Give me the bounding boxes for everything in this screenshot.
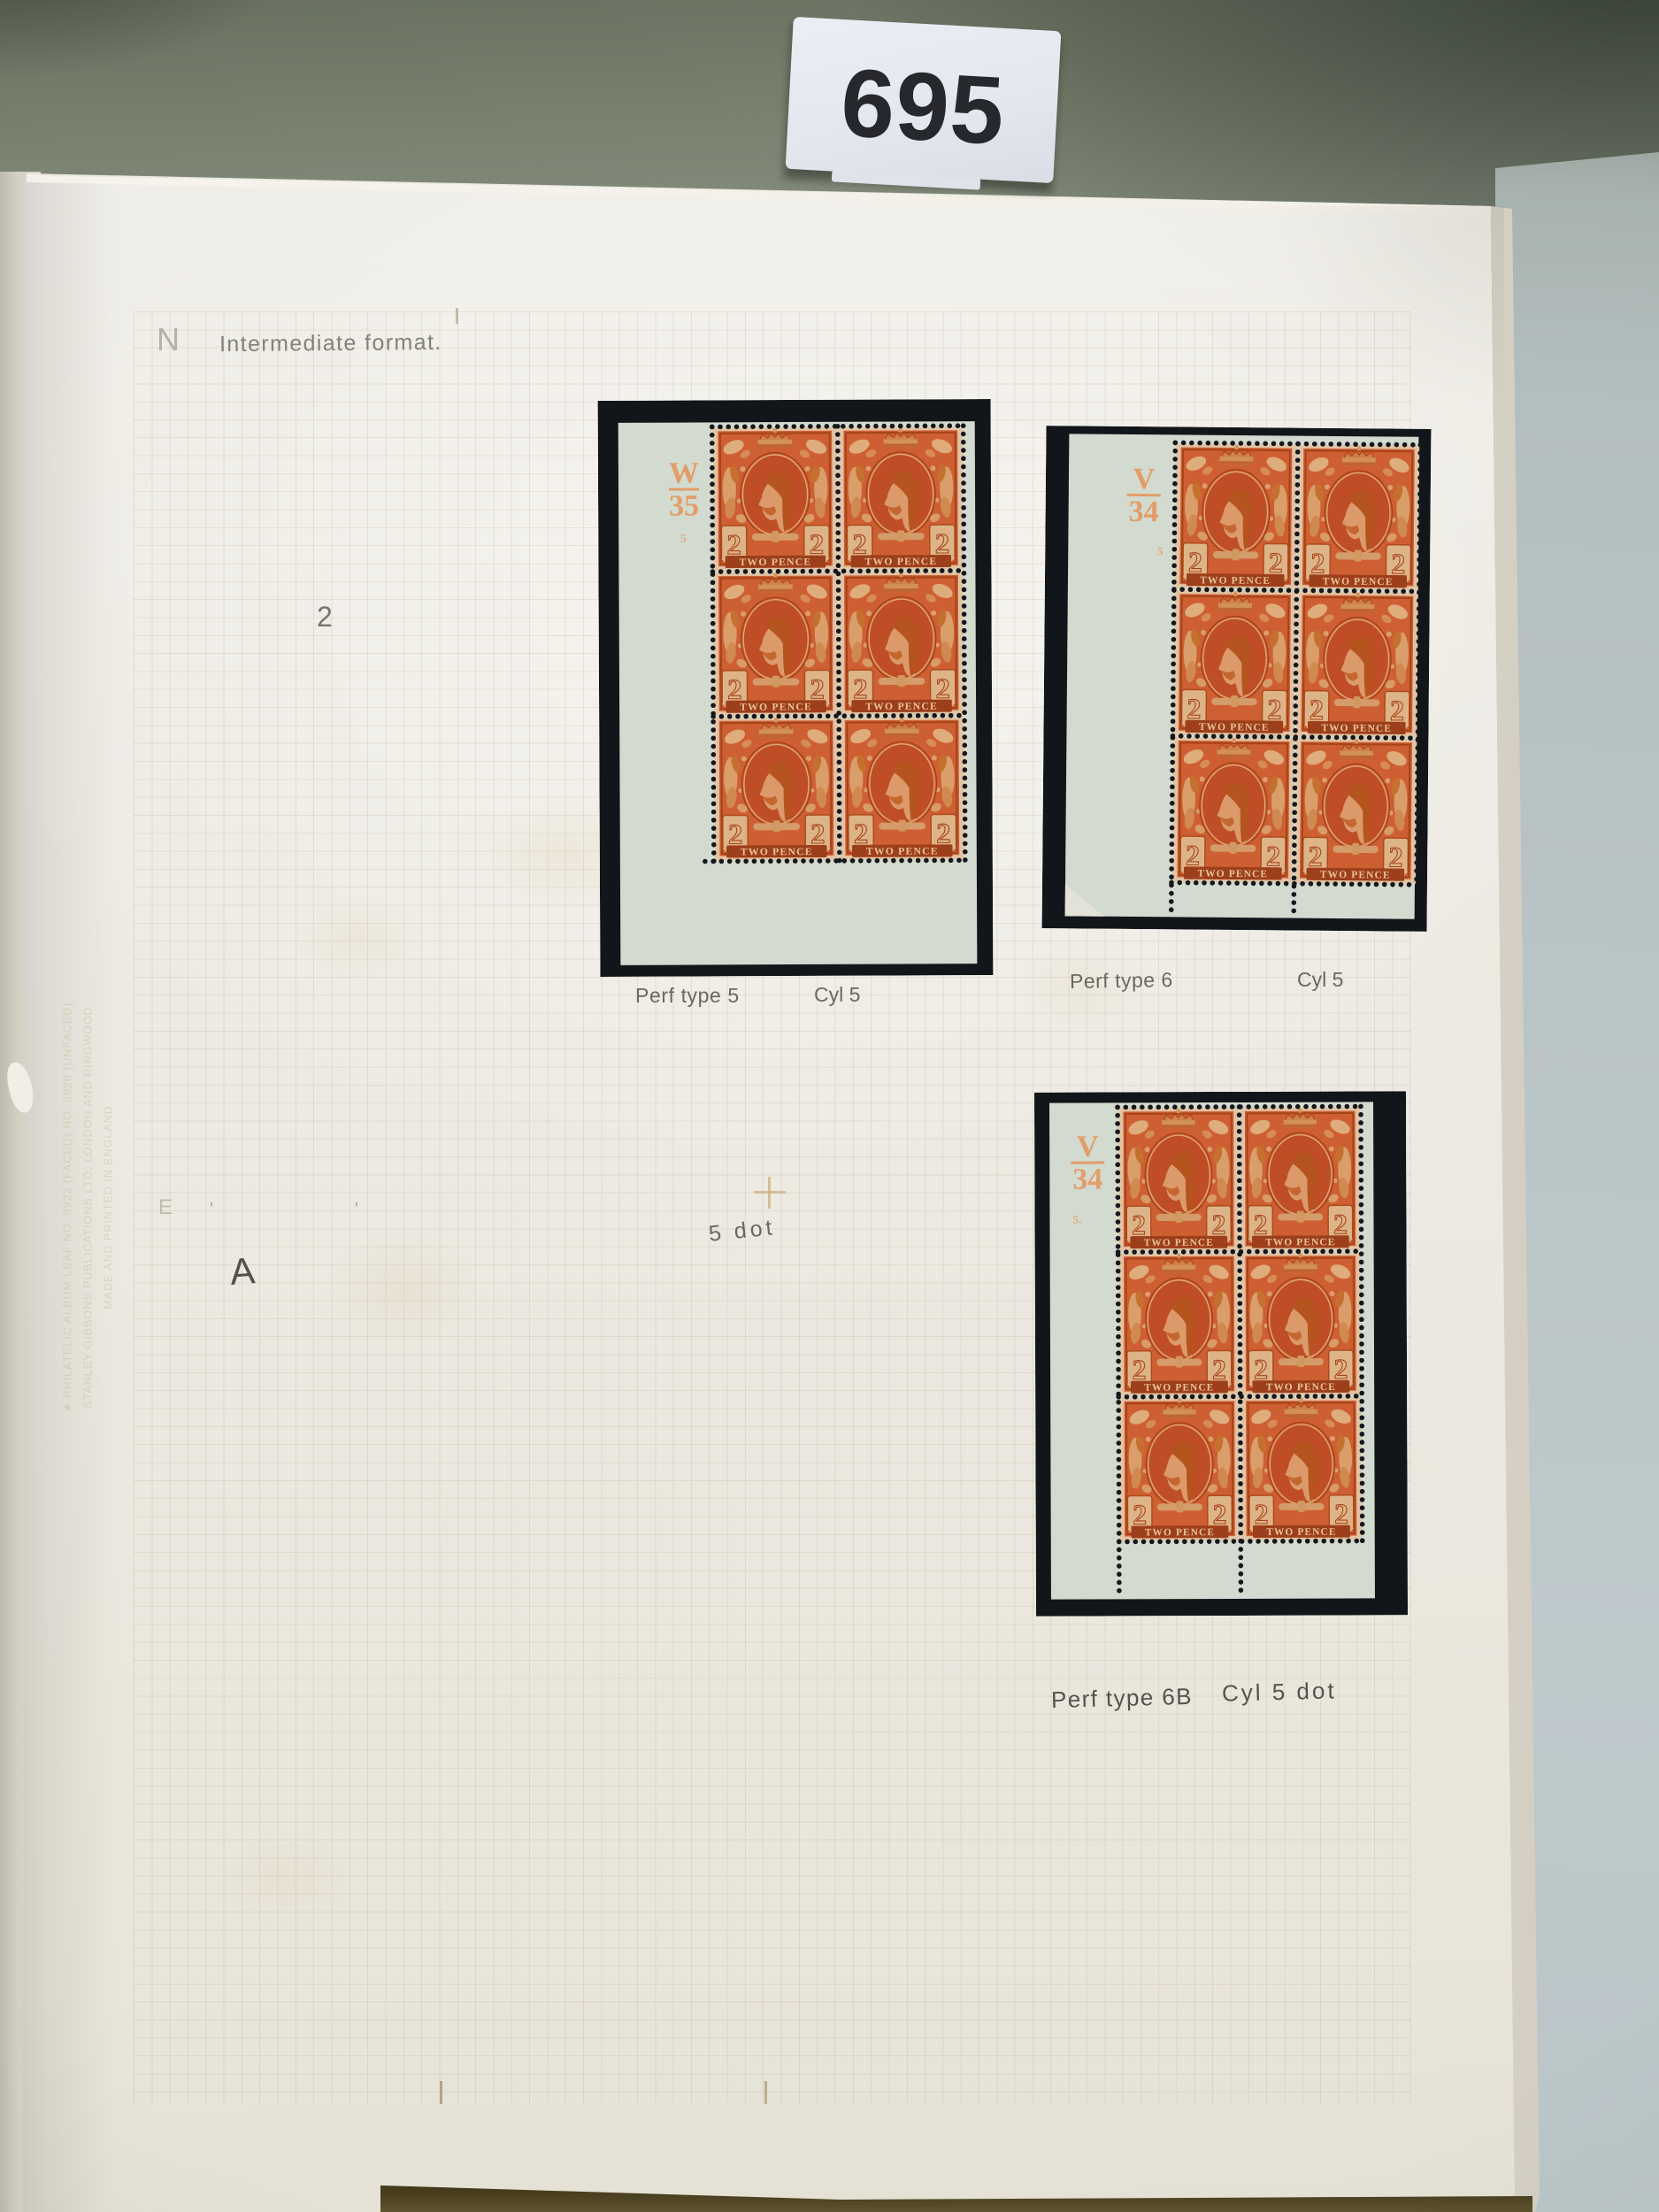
svg-text:34: 34	[1072, 1163, 1102, 1195]
svg-text:5: 5	[1157, 544, 1164, 557]
svg-text:5.: 5.	[1073, 1213, 1082, 1226]
svg-text:35: 35	[669, 489, 699, 522]
svg-text:5: 5	[680, 532, 687, 545]
svg-text:W: W	[669, 457, 699, 489]
svg-text:34: 34	[1128, 495, 1158, 528]
svg-text:V: V	[1133, 463, 1156, 495]
svg-text:V: V	[1077, 1130, 1099, 1163]
